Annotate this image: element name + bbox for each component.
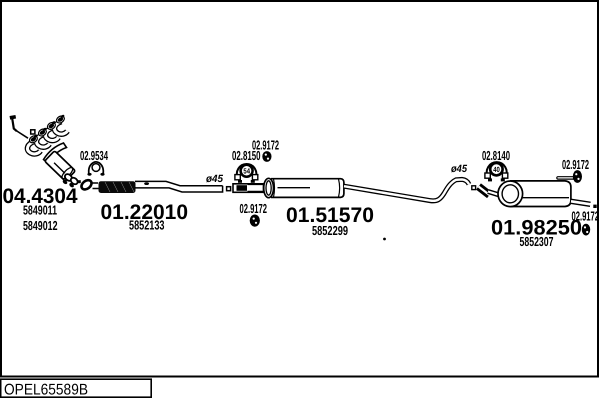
svg-text:5849012: 5849012 (23, 218, 58, 233)
svg-text:OPEL65589B: OPEL65589B (4, 381, 88, 398)
svg-text:40: 40 (493, 165, 500, 174)
svg-text:54: 54 (243, 167, 250, 176)
svg-text:02.9172: 02.9172 (252, 137, 279, 152)
svg-text:02.9172: 02.9172 (572, 208, 600, 223)
svg-text:02.9172: 02.9172 (240, 201, 268, 216)
svg-text:02.9172: 02.9172 (562, 157, 589, 172)
svg-text:5852299: 5852299 (312, 223, 348, 238)
svg-text:5852133: 5852133 (129, 218, 165, 233)
svg-text:02.9534: 02.9534 (80, 148, 108, 163)
svg-text:5849011: 5849011 (23, 203, 57, 218)
svg-text:5852307: 5852307 (520, 234, 554, 249)
svg-text:ø45: ø45 (206, 173, 223, 185)
svg-text:ø45: ø45 (451, 163, 467, 175)
svg-text:02.8140: 02.8140 (482, 148, 510, 163)
